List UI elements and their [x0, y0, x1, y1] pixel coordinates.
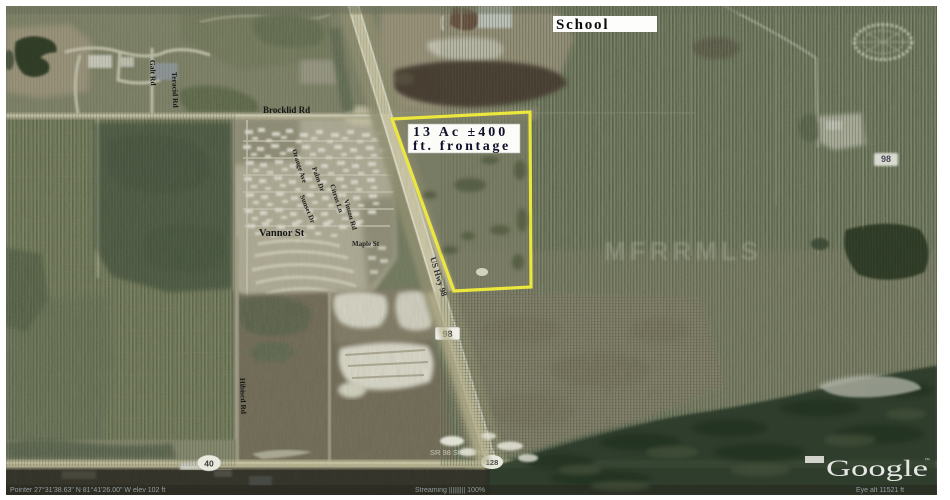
svg-text:Teracid Rd: Teracid Rd: [170, 72, 180, 109]
svg-text:Maple St: Maple St: [352, 240, 380, 248]
svg-text:Hibiscd Rd: Hibiscd Rd: [238, 378, 248, 415]
svg-text:Vannor St: Vannor St: [259, 228, 305, 239]
svg-text:Pointer 27°31'38.63" N 81°: Pointer 27°31'38.63" N 81°41'26.00" W el…: [10, 486, 165, 494]
svg-text:Galt Rd: Galt Rd: [148, 60, 158, 87]
svg-text:98: 98: [881, 154, 891, 164]
svg-text:Eye alt 11521 ft: Eye alt 11521 ft: [856, 487, 904, 494]
svg-text:13 Ac ±400: 13 Ac ±400: [413, 125, 508, 140]
svg-text:Google: Google: [826, 456, 928, 481]
svg-text:Brocklid Rd: Brocklid Rd: [263, 105, 310, 115]
svg-text:40: 40: [204, 459, 214, 469]
svg-text:ft. frontage: ft. frontage: [413, 139, 511, 154]
svg-text:™: ™: [924, 457, 930, 464]
svg-text:School: School: [556, 17, 609, 33]
svg-text:Streaming ||||||||| 100%: Streaming ||||||||| 100%: [415, 487, 485, 494]
